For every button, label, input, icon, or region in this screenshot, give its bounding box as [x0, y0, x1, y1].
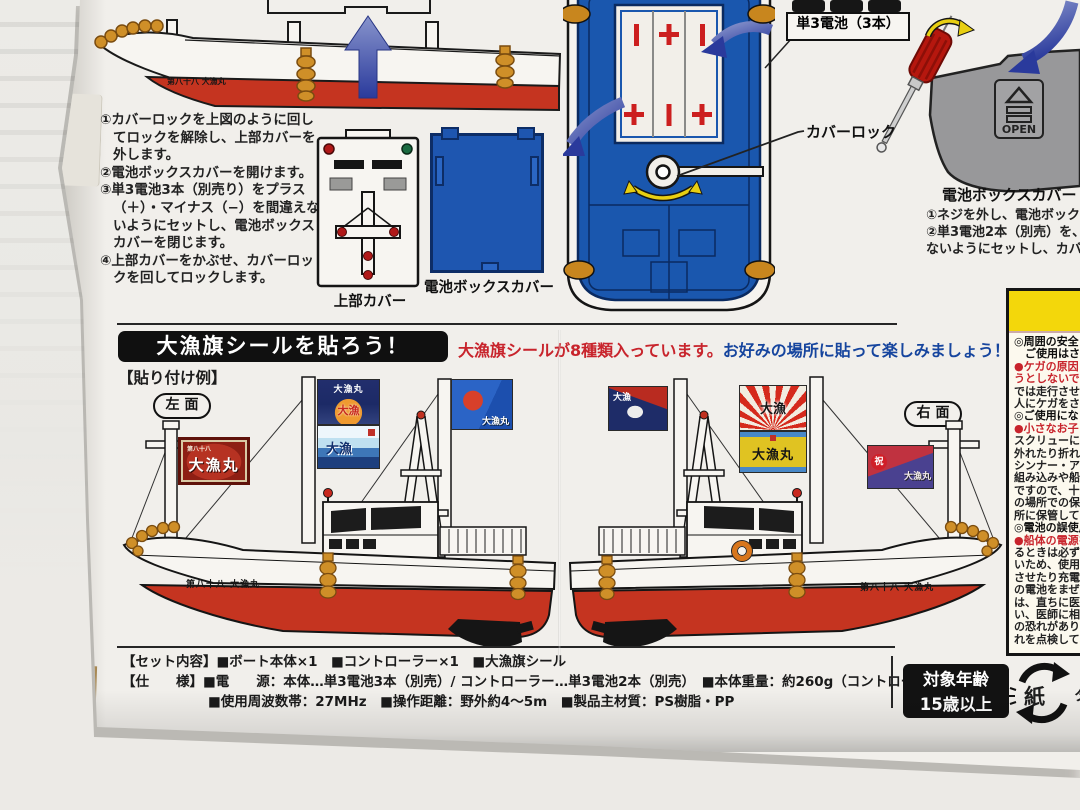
controller-cover-label: 電池ボックスカバー: [942, 184, 1077, 205]
flag-sticker-blue-fish: 大漁丸: [451, 379, 513, 430]
open-text: OPEN: [1002, 123, 1036, 136]
spec-line-power: 【仕 様】■電 源：本体…単3電池3本（別売）/ コントローラー…単3電池2本（…: [122, 672, 982, 692]
warning-line: の場所での保: [1014, 497, 1080, 509]
ctrl-step-2: ②単3電池2本（別売）を、プ: [926, 224, 1080, 241]
cover-lock-label: カバーロック: [806, 121, 896, 142]
sticker-note-blue: お好みの場所に貼って楽しみましょう！: [723, 341, 1010, 360]
warning-line: うとしないで: [1014, 373, 1080, 385]
warning-panel: ◎周囲の安全 ご使用はさ ●ケガの原因 うとしないで では走行させ 人にケガをさ…: [1006, 288, 1080, 656]
hull-name-right-boat: 第八十八 大漁丸: [860, 580, 934, 593]
warning-line: れを点検してくだ: [1014, 634, 1080, 646]
photo-of-toy-boat-box: 第八十八 大漁丸 ①カバーロックを上図のように回してロックを解除し、上部カバーを…: [0, 0, 1080, 810]
sticker-section-heading: 大漁旗シールを貼ろう！: [118, 331, 448, 362]
life-ring-icon: [732, 541, 752, 561]
flag-main-text: 大漁丸: [181, 454, 247, 475]
sticker-note: 大漁旗シールが8種類入っています。お好みの場所に貼って楽しみましょう！: [458, 337, 1010, 361]
open-icon: OPEN: [995, 80, 1043, 138]
warning-line: の恐れがあります: [1014, 621, 1080, 633]
warning-line: スクリューに: [1014, 435, 1080, 447]
warning-panel-header: [1009, 291, 1080, 333]
spec-line-contents: 【セット内容】■ボート本体×1 ■コントローラー×1 ■大漁旗シール: [122, 652, 566, 672]
age-badge-line1: 対象年齢: [903, 667, 1009, 692]
flag-main-text: 大漁丸: [740, 444, 806, 463]
flag-top-text: 第八十八: [187, 444, 211, 453]
section-divider-bottom: [117, 646, 895, 648]
product-box-panel: 第八十八 大漁丸 ①カバーロックを上図のように回してロックを解除し、上部カバーを…: [0, 0, 1080, 810]
warning-line: ◎電池の誤使用: [1014, 522, 1080, 534]
flag-main-text: 大漁丸: [482, 414, 509, 427]
flag-main-text: 大漁: [318, 402, 379, 418]
warning-line: いため、使用し: [1014, 559, 1080, 571]
sticker-note-red: 大漁旗シールが8種類入っています。: [458, 341, 723, 360]
battery-steps-controller: ①ネジを外し、電池ボックス ②単3電池2本（別売）を、プ ないようにセットし、カ…: [926, 207, 1080, 258]
flag-stamp: [770, 435, 776, 441]
flag-main-text: 大漁: [740, 398, 806, 417]
flag-sticker-sunrise: 大漁: [739, 385, 807, 431]
flag-sticker-rays-fish: 大漁: [608, 386, 668, 431]
warning-line: の電池をまぜて: [1014, 584, 1080, 596]
warning-lines: ◎周囲の安全 ご使用はさ ●ケガの原因 うとしないで では走行させ 人にケガをさ…: [1014, 336, 1080, 646]
flag-main-text: 大漁: [326, 438, 352, 457]
batteries-pointer-line: [765, 38, 792, 68]
flag-sticker-yellow: 大漁丸: [739, 431, 807, 473]
ctrl-step-1: ①ネジを外し、電池ボックス: [926, 207, 1080, 224]
hull-name-left-boat: 第八十八 大漁丸: [186, 577, 260, 590]
flag-sticker-wave: 大漁: [317, 425, 380, 469]
warning-line: ご使用はさ: [1014, 348, 1080, 360]
flag-main-text: 大漁丸: [904, 469, 931, 482]
flag-stamp-text: 祝: [871, 454, 887, 470]
box-fold-crease: [558, 330, 561, 660]
flag-stamp: [368, 429, 375, 436]
cover-lock-pointer-line: [677, 131, 804, 176]
section-divider-top: [117, 323, 897, 325]
flag-main-text: 大漁: [613, 390, 631, 403]
ctrl-step-3: ないようにセットし、カバー: [926, 241, 1080, 258]
warning-line: ◎ご使用にな: [1014, 410, 1080, 422]
warning-line: 組み込みや船: [1014, 472, 1080, 484]
flag-sticker-navy-sun: 大漁丸 大漁: [317, 379, 380, 425]
batteries-label: 単3電池（3本）: [786, 12, 910, 41]
flag-sticker-celebration: 祝 大漁丸: [867, 445, 934, 489]
flag-sticker-red-banner: 第八十八 大漁丸: [178, 437, 250, 485]
flag-top-text: 大漁丸: [318, 382, 379, 395]
